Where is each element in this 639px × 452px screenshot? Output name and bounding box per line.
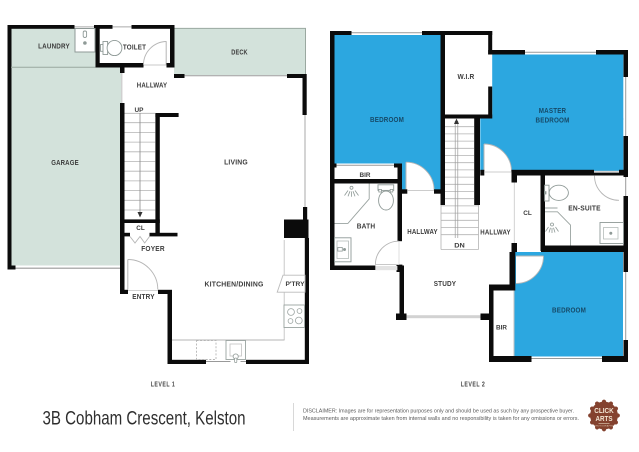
svg-text:CL: CL [523,210,532,217]
svg-text:MASTER: MASTER [539,106,567,115]
svg-text:KITCHEN/DINING: KITCHEN/DINING [205,280,264,289]
svg-text:ENTRY: ENTRY [132,292,155,301]
svg-text:DN: DN [454,243,465,250]
svg-text:PHOTOGRAPHY: PHOTOGRAPHY [594,425,614,428]
svg-text:HALLWAY: HALLWAY [137,81,168,90]
svg-text:BEDROOM: BEDROOM [552,306,586,315]
svg-text:BIR: BIR [496,325,507,332]
svg-text:HALLWAY: HALLWAY [480,228,511,237]
svg-text:LIVING: LIVING [224,158,248,167]
svg-text:ARTS: ARTS [596,414,613,423]
svg-text:BEDROOM: BEDROOM [536,116,570,125]
svg-text:HALLWAY: HALLWAY [407,227,438,236]
svg-text:CL: CL [136,225,145,232]
svg-text:GARAGE: GARAGE [51,158,79,167]
svg-text:DISCLAIMER: Images are for rep: DISCLAIMER: Images are for representatio… [303,409,574,415]
svg-text:LAUNDRY: LAUNDRY [38,42,70,51]
svg-text:W.I.R: W.I.R [458,72,475,81]
svg-text:P'TRY: P'TRY [286,281,306,288]
svg-text:STUDY: STUDY [434,279,457,288]
svg-text:LEVEL 1: LEVEL 1 [151,382,176,389]
svg-text:BIR: BIR [360,172,371,179]
svg-text:TOILET: TOILET [123,43,146,52]
svg-text:EN-SUITE: EN-SUITE [568,204,601,213]
svg-text:BEDROOM: BEDROOM [370,115,404,124]
svg-text:Measurements are approximate t: Measurements are approximate taken from … [303,416,579,422]
svg-text:FOYER: FOYER [141,244,165,253]
svg-text:UP: UP [135,107,145,114]
svg-text:BATH: BATH [357,222,376,231]
svg-text:DECK: DECK [231,48,248,57]
svg-text:LEVEL 2: LEVEL 2 [461,382,486,389]
svg-text:3B Cobham Crescent, Kelston: 3B Cobham Crescent, Kelston [43,409,246,430]
